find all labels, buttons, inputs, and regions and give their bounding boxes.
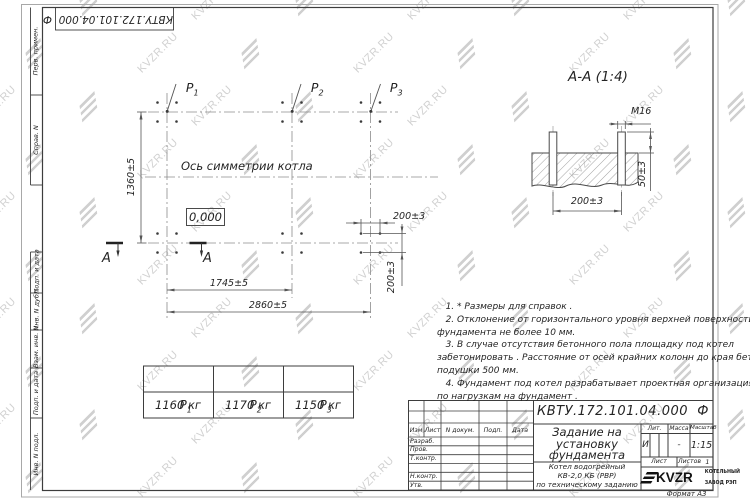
note-line-5: забетонировать . Расстояние от осей край… (437, 354, 750, 364)
load-table-header-p2: P2 (213, 366, 283, 392)
load-table-value-p1: 1160 кг (143, 392, 213, 418)
rev-header-n-dokum: N докум. (441, 424, 479, 437)
format-label: Формат А3 (660, 491, 713, 499)
title-block-designation: КВТУ.172.101.04.000 Ф (533, 400, 713, 424)
doc-subtitle-line-2: КВ-2,0 КБ (РВР) (533, 472, 641, 480)
rev-header-izm: Изм (408, 424, 424, 437)
load-table-value-p3: 1150 кг (283, 392, 353, 418)
note-line-4: 3. В случае отсутствия бетонного пола пл… (437, 341, 734, 351)
scale-value: 1:15 (690, 434, 713, 458)
row-label-razrab: Разраб. (410, 439, 434, 446)
load-label-p3: P3 (374, 67, 403, 111)
strip-label-vzam-inv: Взам. инв. N (31, 330, 41, 368)
row-label-utv: Утв. (410, 483, 423, 490)
strip-label-sprav-n: Справ. N (31, 95, 41, 185)
anchor-bolt-points (156, 101, 381, 254)
mass-value: - (668, 434, 690, 458)
load-label-p1: P1 (170, 67, 199, 111)
row-label-prov: Пров. (410, 447, 428, 454)
rev-header-data: Дата (507, 424, 533, 437)
section-letter-right: А (203, 252, 212, 266)
mass-header: Масса (668, 424, 690, 434)
company-logo-block: KVZR КОТЕЛЬНЫЙ ЗАВОД РЭП (643, 468, 713, 489)
row-label-tkontr: Т.контр. (410, 456, 437, 463)
rev-header-list: Лист (424, 424, 441, 437)
kvzr-logo-text: KVZR (656, 471, 693, 486)
lit-header: Лит. (641, 424, 668, 434)
factory-name: КОТЕЛЬНЫЙ ЗАВОД РЭП (695, 465, 740, 493)
anchor-bolt-left (549, 132, 557, 185)
doc-title-line-3: фундамента (533, 449, 641, 462)
plan-dimensions (137, 112, 406, 312)
rev-header-podp: Подп. (479, 424, 507, 437)
dim-bolt-200-horizontal: 200±3 (393, 212, 425, 222)
axis-of-symmetry-label: Ось симметрии котла (181, 160, 313, 173)
dim-1745: 1745±5 (199, 279, 259, 289)
load-table-value-p2: 1170 кг (213, 392, 283, 418)
note-line-7: 4. Фундамент под котел разрабатывает про… (437, 380, 750, 390)
scale-header: Масштаб (690, 424, 713, 434)
section-letter-left: А (102, 252, 111, 266)
sheet-label: Лист (641, 457, 677, 467)
note-line-6: подушки 500 мм. (437, 367, 519, 377)
dim-bolt-200-vertical: 200±3 (387, 257, 399, 297)
lit-value: И (641, 434, 650, 458)
load-label-p2: P2 (295, 67, 324, 111)
doc-subtitle-line-1: Котел водогрейный (533, 463, 641, 471)
strip-label-podp-data-2: Подп. и дата (31, 368, 41, 418)
strip-label-podp-data-1: Подп. и дата (31, 252, 41, 293)
note-line-1: 1. * Размеры для справок . (437, 303, 572, 313)
section-cut-marks (106, 243, 207, 257)
note-line-2: 2. Отклонение от горизонтального уровня … (437, 316, 750, 326)
bolt-callout-m16: М16 (631, 107, 651, 117)
dim-1360: 1360±5 (127, 147, 139, 207)
dim-2860: 2860±5 (238, 301, 298, 311)
plan-dimension-arrows (140, 112, 404, 313)
dim-50: 50±3 (638, 154, 650, 194)
section-title: А-А (1:4) (556, 70, 640, 85)
load-table-header-p1: P1 (143, 366, 213, 392)
level-mark: 0,000 (186, 208, 225, 226)
strip-label-inv-podl: Инв. N подл. (31, 418, 41, 490)
row-label-nkontr: Н.контр. (410, 474, 438, 481)
load-table-header-p3: P3 (283, 366, 353, 392)
top-designation-rotated: КВТУ.172.101.04.000 Ф (55, 8, 173, 30)
anchor-bolt-right (618, 132, 626, 185)
strip-label-perv-primen: Перв. примен. (31, 8, 41, 95)
drawing-sheet: KVZR.RUKVZR.RUKVZR.RUKVZR.RUKVZR.RUKVZR.… (0, 0, 750, 500)
dim-200-section: 200±3 (557, 197, 617, 207)
doc-subtitle-line-3: по техническому заданию (533, 481, 641, 489)
strip-label-inv-dubl: Инв. N дубл. (31, 293, 41, 330)
note-line-3: фундамента не более 10 мм. (437, 329, 575, 339)
